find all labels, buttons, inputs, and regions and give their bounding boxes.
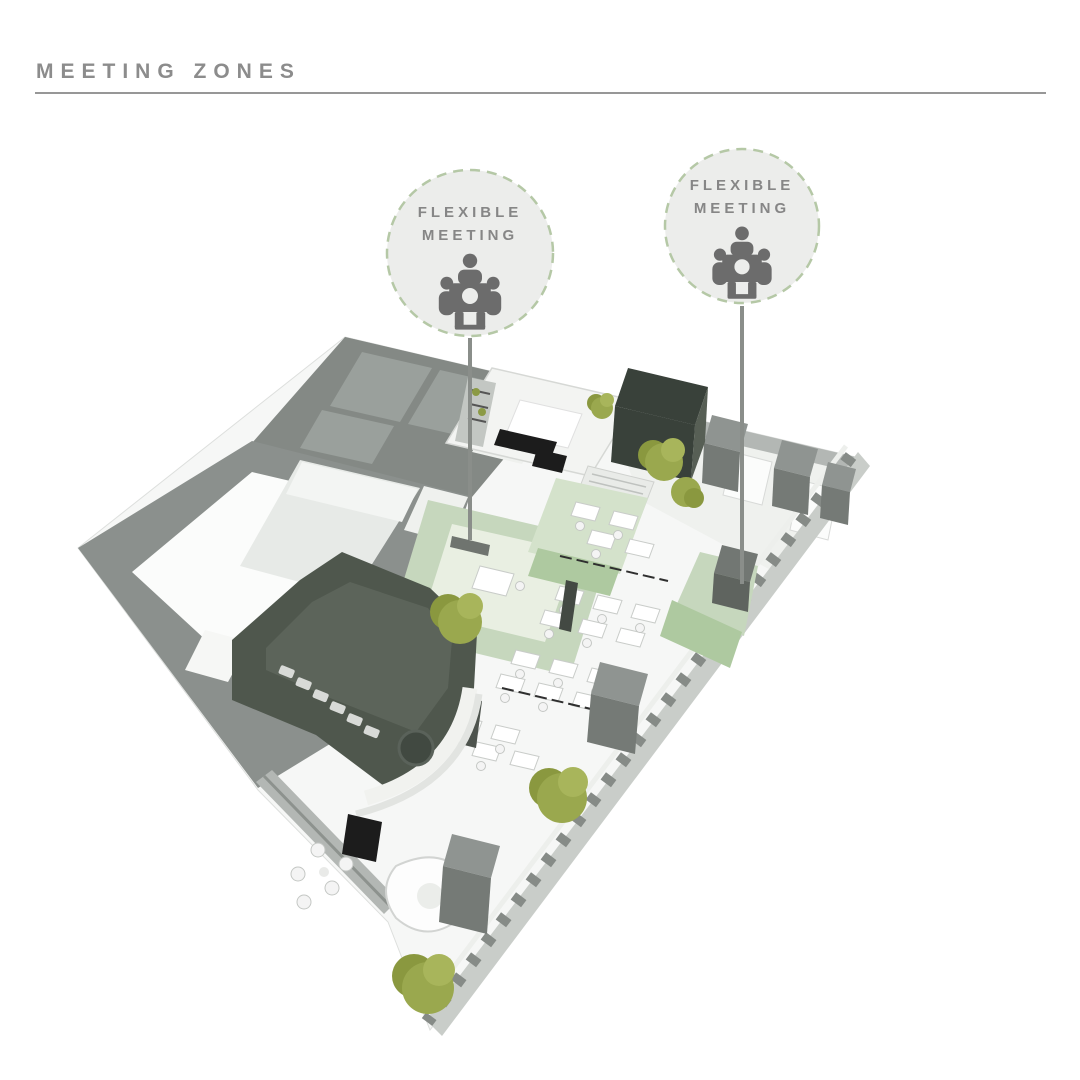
callout-badge-flexible-meeting-left: FLEXIBLE MEETING — [384, 167, 556, 339]
floor-plan-svg — [0, 0, 1080, 1080]
meeting-table-people-icon — [430, 251, 510, 333]
badge-label: FLEXIBLE MEETING — [418, 201, 523, 247]
tv-panel — [342, 814, 382, 862]
callout-badge-flexible-meeting-right: FLEXIBLE MEETING — [662, 146, 822, 306]
floor-plan-illustration — [0, 0, 1080, 1080]
meeting-table-people-icon — [704, 224, 780, 302]
badge-label: FLEXIBLE MEETING — [690, 174, 795, 220]
